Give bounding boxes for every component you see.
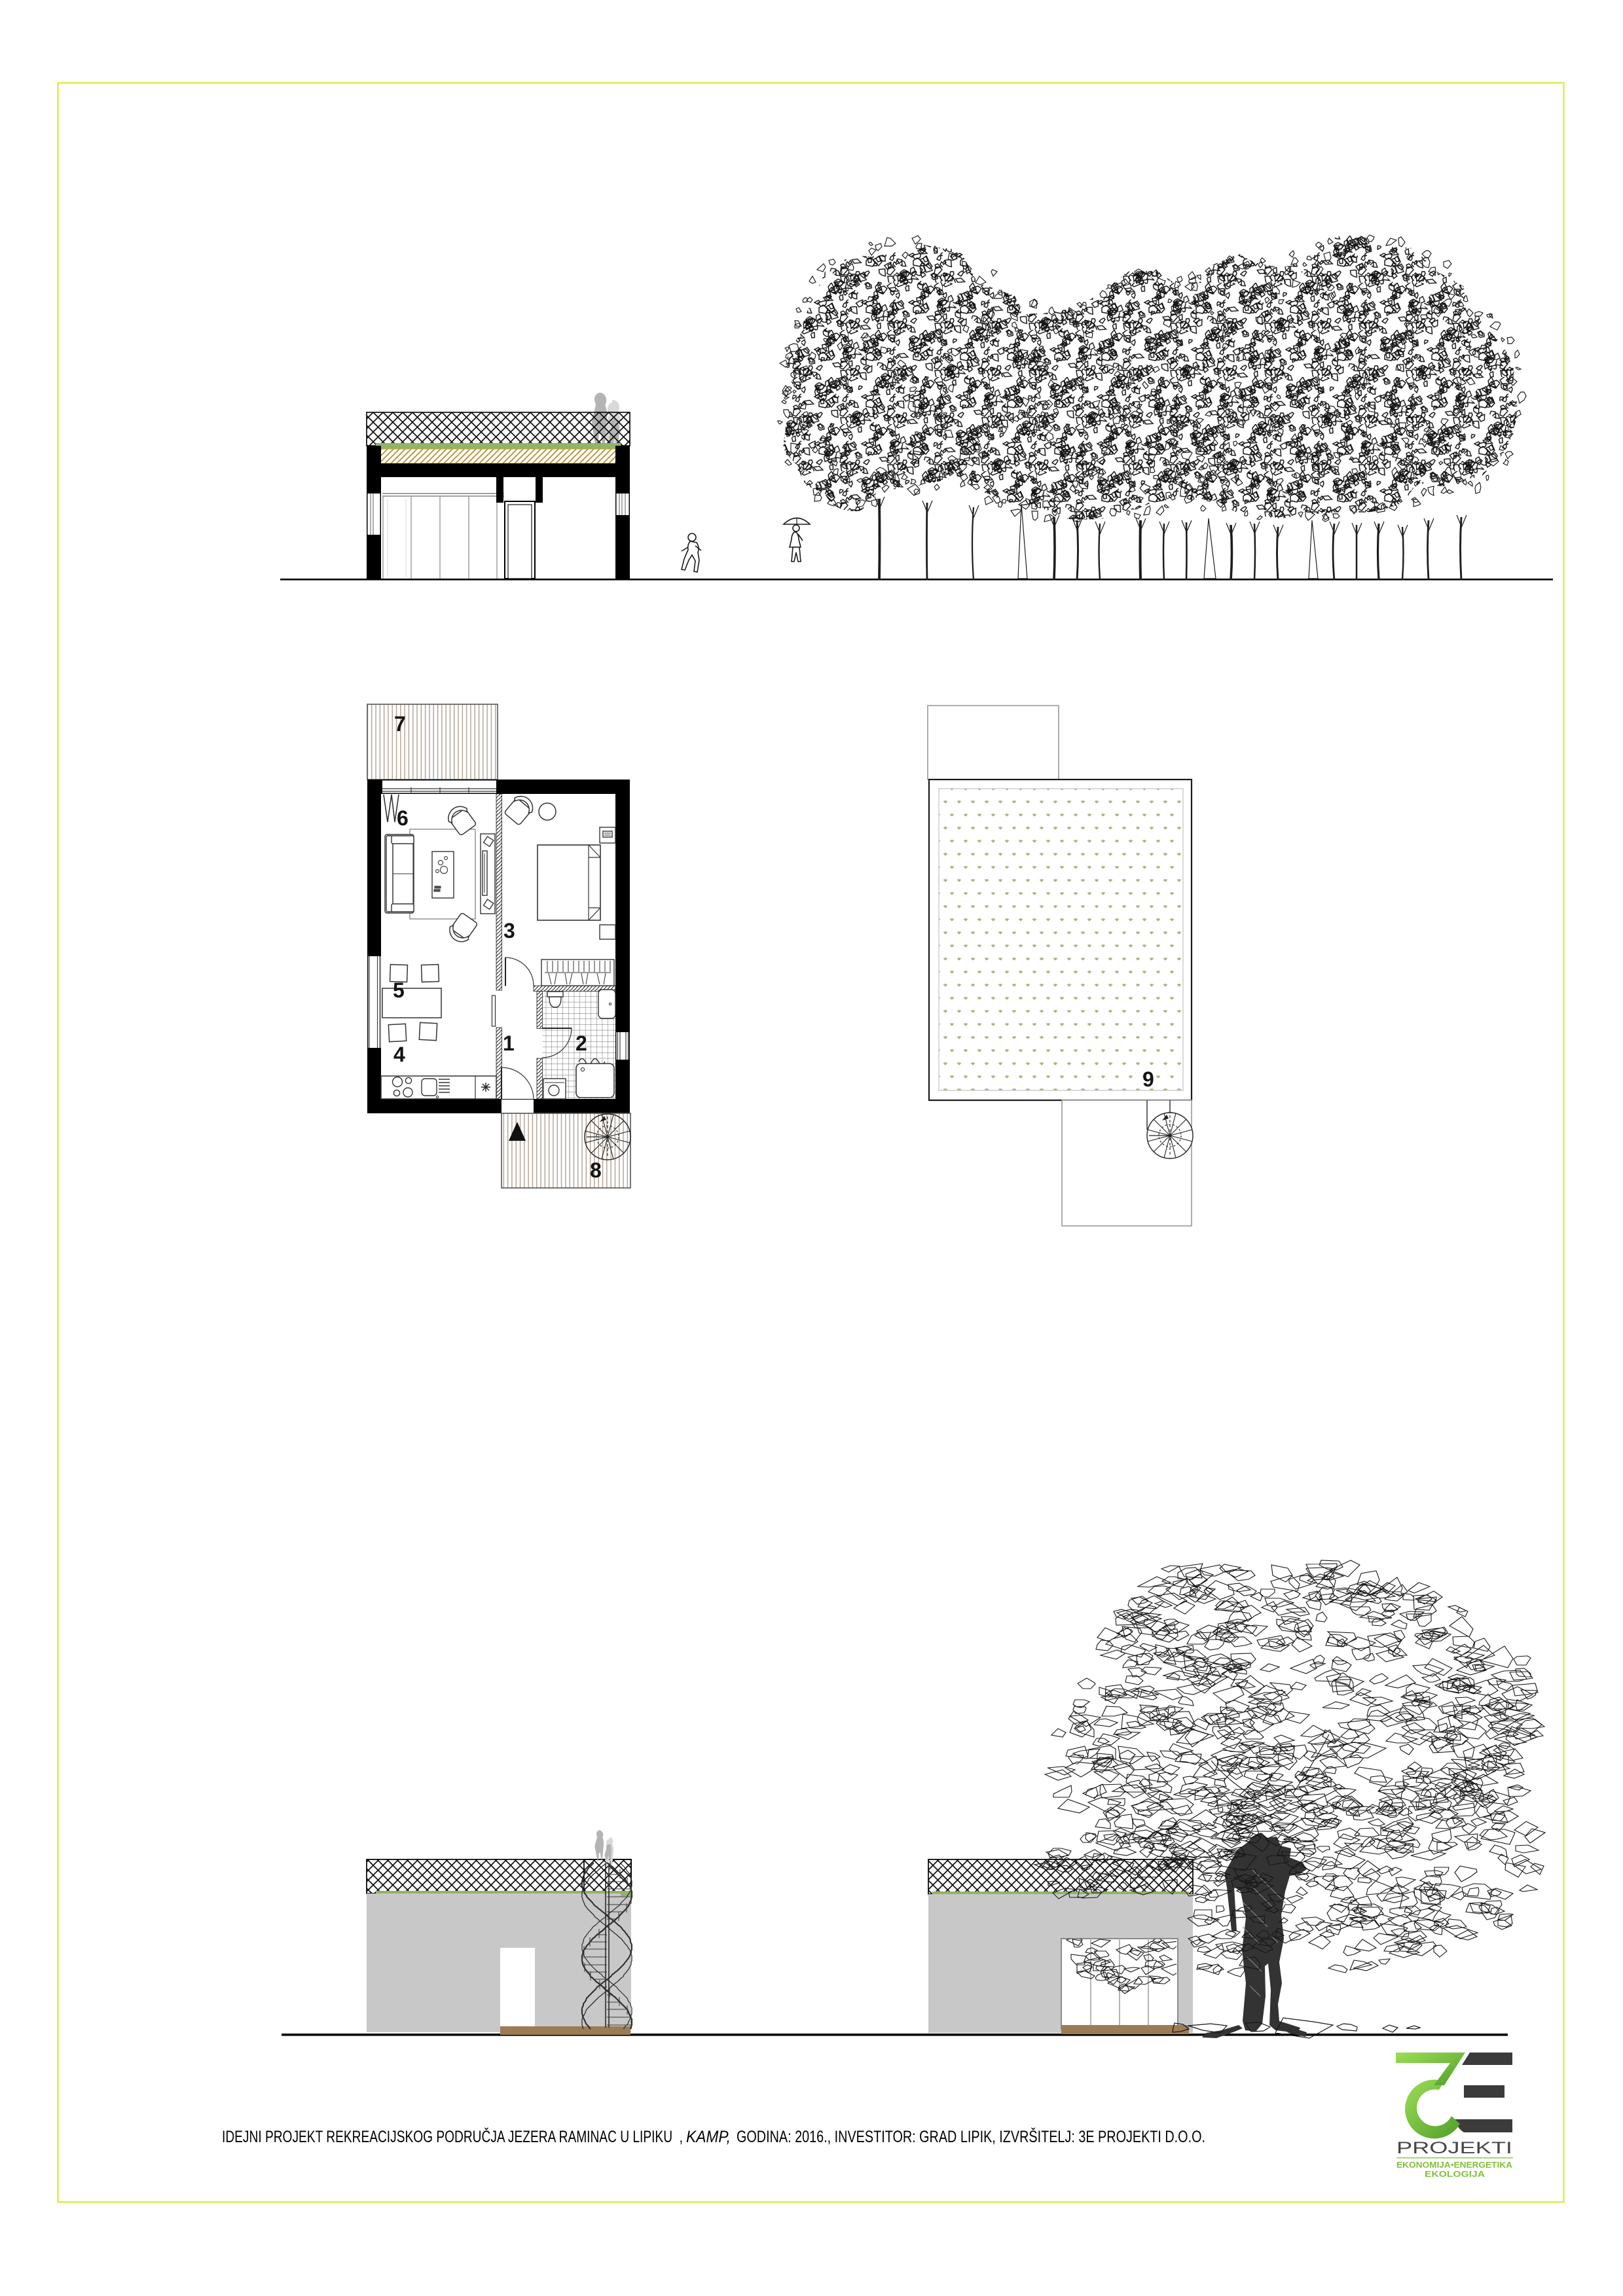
svg-text:KAMP,: KAMP, <box>686 2128 731 2146</box>
svg-text:GODINA: 2016., INVESTITOR: GRA: GODINA: 2016., INVESTITOR: GRAD LIPIK, I… <box>737 2127 1205 2146</box>
svg-text:7: 7 <box>394 712 406 736</box>
svg-text:4: 4 <box>393 1043 405 1066</box>
svg-text:9: 9 <box>1142 1067 1154 1091</box>
svg-text:1: 1 <box>503 1031 515 1055</box>
svg-text:2: 2 <box>575 1031 587 1055</box>
svg-text:PROJEKTI: PROJEKTI <box>1396 2139 1512 2157</box>
svg-text:3: 3 <box>503 919 515 942</box>
svg-text:EKONOMIJA•ENERGETIKA: EKONOMIJA•ENERGETIKA <box>1396 2161 1512 2170</box>
svg-text:8: 8 <box>590 1158 602 1182</box>
svg-text:5: 5 <box>393 978 405 1002</box>
svg-text:IDEJNI PROJEKT REKREACIJSKOG P: IDEJNI PROJEKT REKREACIJSKOG PODRUČJA JE… <box>222 2127 683 2146</box>
svg-text:EKOLOGIJA: EKOLOGIJA <box>1425 2170 1485 2179</box>
svg-text:6: 6 <box>397 806 409 830</box>
